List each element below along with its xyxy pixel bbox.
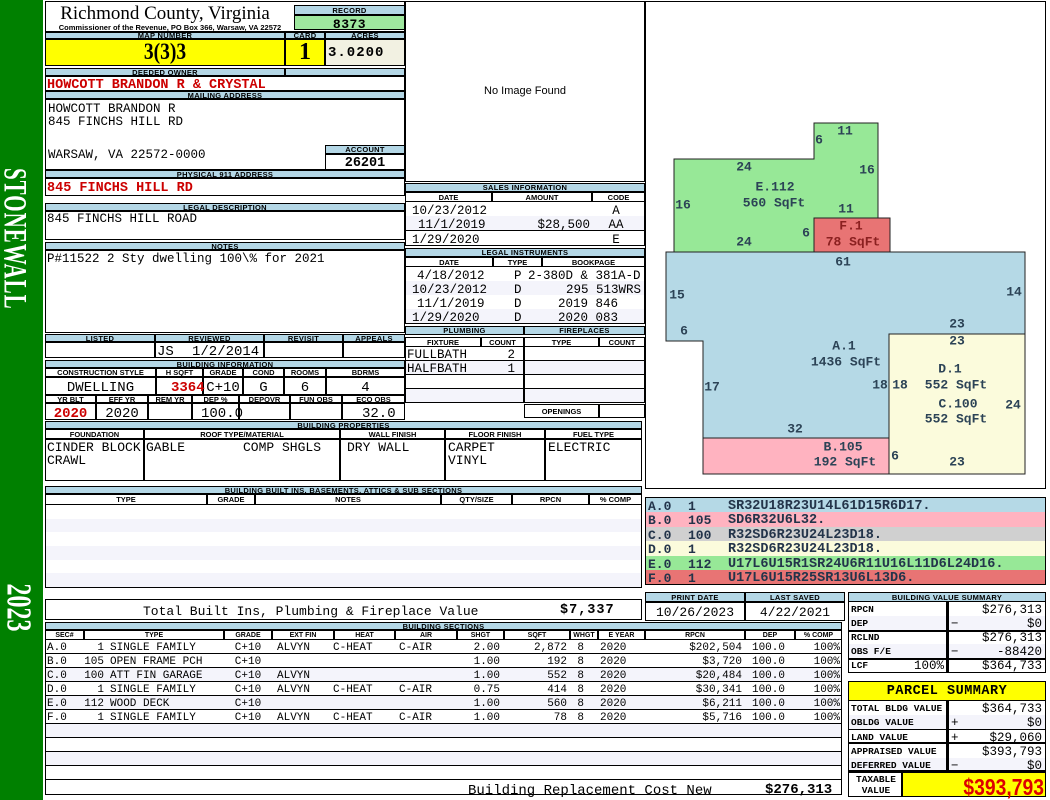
svg-text:E.112: E.112 bbox=[755, 179, 794, 194]
svg-text:11: 11 bbox=[838, 201, 854, 216]
svg-text:D.1: D.1 bbox=[938, 361, 962, 376]
svg-text:18: 18 bbox=[872, 377, 888, 392]
svg-text:192 SqFt: 192 SqFt bbox=[814, 454, 876, 469]
svg-text:B.105: B.105 bbox=[823, 439, 862, 454]
svg-text:61: 61 bbox=[835, 254, 851, 269]
svg-text:17: 17 bbox=[704, 379, 720, 394]
svg-text:6: 6 bbox=[891, 448, 899, 463]
svg-text:15: 15 bbox=[669, 287, 685, 302]
svg-text:78 SqFt: 78 SqFt bbox=[826, 234, 881, 249]
svg-text:6: 6 bbox=[802, 225, 810, 240]
svg-text:11: 11 bbox=[837, 123, 853, 138]
svg-text:A.1: A.1 bbox=[832, 338, 856, 353]
svg-text:32: 32 bbox=[787, 421, 803, 436]
svg-text:6: 6 bbox=[680, 323, 688, 338]
svg-text:18: 18 bbox=[892, 377, 908, 392]
svg-text:16: 16 bbox=[675, 197, 691, 212]
svg-text:16: 16 bbox=[859, 162, 875, 177]
svg-text:560 SqFt: 560 SqFt bbox=[743, 195, 805, 210]
svg-text:552 SqFt: 552 SqFt bbox=[925, 411, 987, 426]
svg-text:23: 23 bbox=[949, 454, 965, 469]
svg-text:23: 23 bbox=[949, 333, 965, 348]
svg-text:24: 24 bbox=[736, 159, 752, 174]
svg-text:552 SqFt: 552 SqFt bbox=[925, 377, 987, 392]
svg-text:1436 SqFt: 1436 SqFt bbox=[811, 354, 881, 369]
svg-text:24: 24 bbox=[1005, 397, 1021, 412]
svg-text:F.1: F.1 bbox=[839, 218, 863, 233]
svg-text:24: 24 bbox=[736, 234, 752, 249]
svg-text:C.100: C.100 bbox=[938, 396, 977, 411]
svg-text:23: 23 bbox=[949, 316, 965, 331]
svg-text:6: 6 bbox=[815, 132, 823, 147]
svg-text:14: 14 bbox=[1006, 284, 1022, 299]
